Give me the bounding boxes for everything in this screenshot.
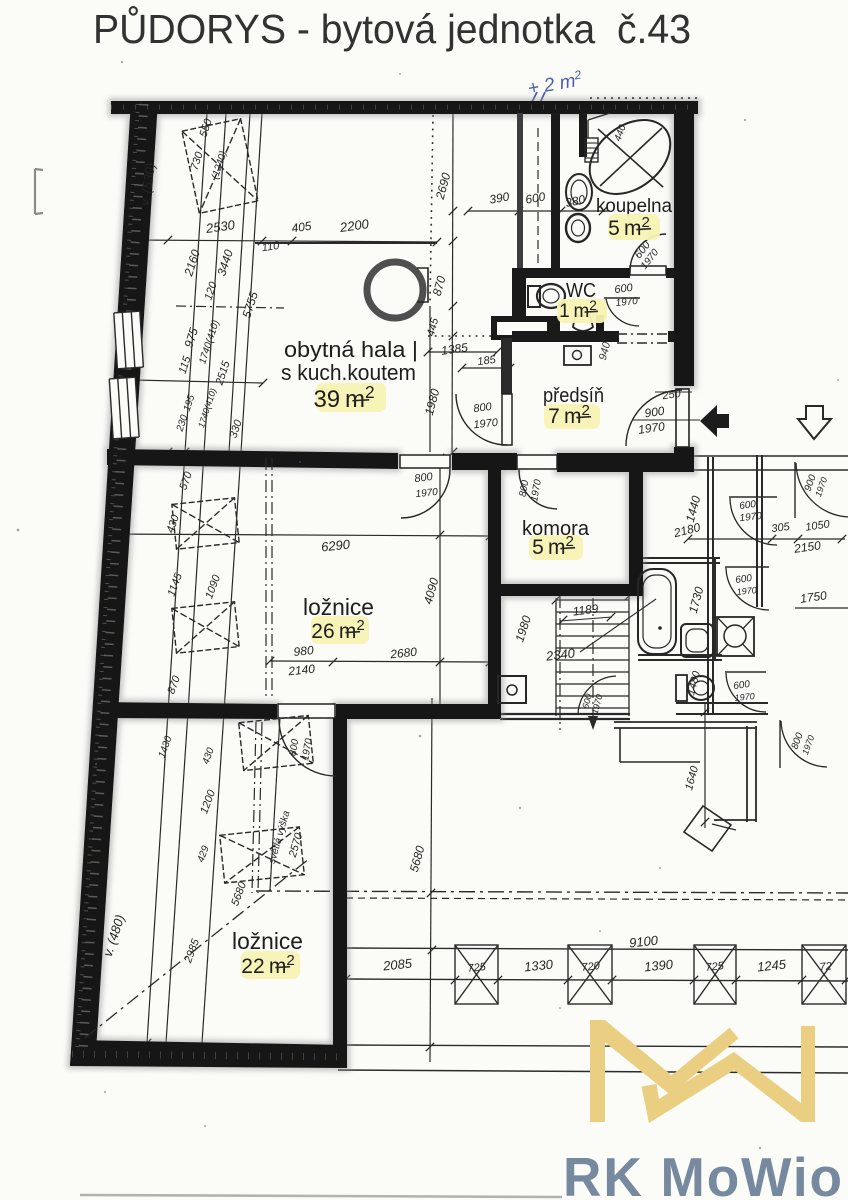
svg-text:1245: 1245 xyxy=(756,956,787,974)
svg-text:900: 900 xyxy=(644,404,666,421)
svg-text:obytná hala |: obytná hala | xyxy=(284,337,418,362)
svg-text:2140: 2140 xyxy=(287,662,316,679)
svg-text:koupelna: koupelna xyxy=(596,196,672,217)
svg-text:předsíň: předsíň xyxy=(543,385,604,407)
svg-text:1970: 1970 xyxy=(734,691,755,703)
svg-text:1330: 1330 xyxy=(523,956,554,974)
svg-text:s kuch.koutem: s kuch.koutem xyxy=(281,360,416,385)
svg-text:725: 725 xyxy=(705,960,725,974)
svg-text:725: 725 xyxy=(467,961,487,975)
svg-text:980: 980 xyxy=(293,643,315,659)
svg-text:2680: 2680 xyxy=(389,645,418,662)
svg-text:ložnice: ložnice xyxy=(232,928,303,954)
svg-text:720: 720 xyxy=(581,960,601,974)
svg-text:405: 405 xyxy=(291,219,313,236)
svg-text:2085: 2085 xyxy=(381,955,413,973)
svg-text:1970: 1970 xyxy=(736,585,757,597)
svg-text:6290: 6290 xyxy=(320,536,351,554)
svg-text:PŮDORYS - bytová jednotka č.4: PŮDORYS - bytová jednotka č.43 xyxy=(93,5,691,52)
svg-text:RK MoWio: RK MoWio xyxy=(563,1146,844,1200)
svg-text:9100: 9100 xyxy=(628,932,659,950)
svg-text:1390: 1390 xyxy=(643,956,674,974)
svg-text:72: 72 xyxy=(819,960,832,973)
svg-text:110: 110 xyxy=(261,240,281,254)
